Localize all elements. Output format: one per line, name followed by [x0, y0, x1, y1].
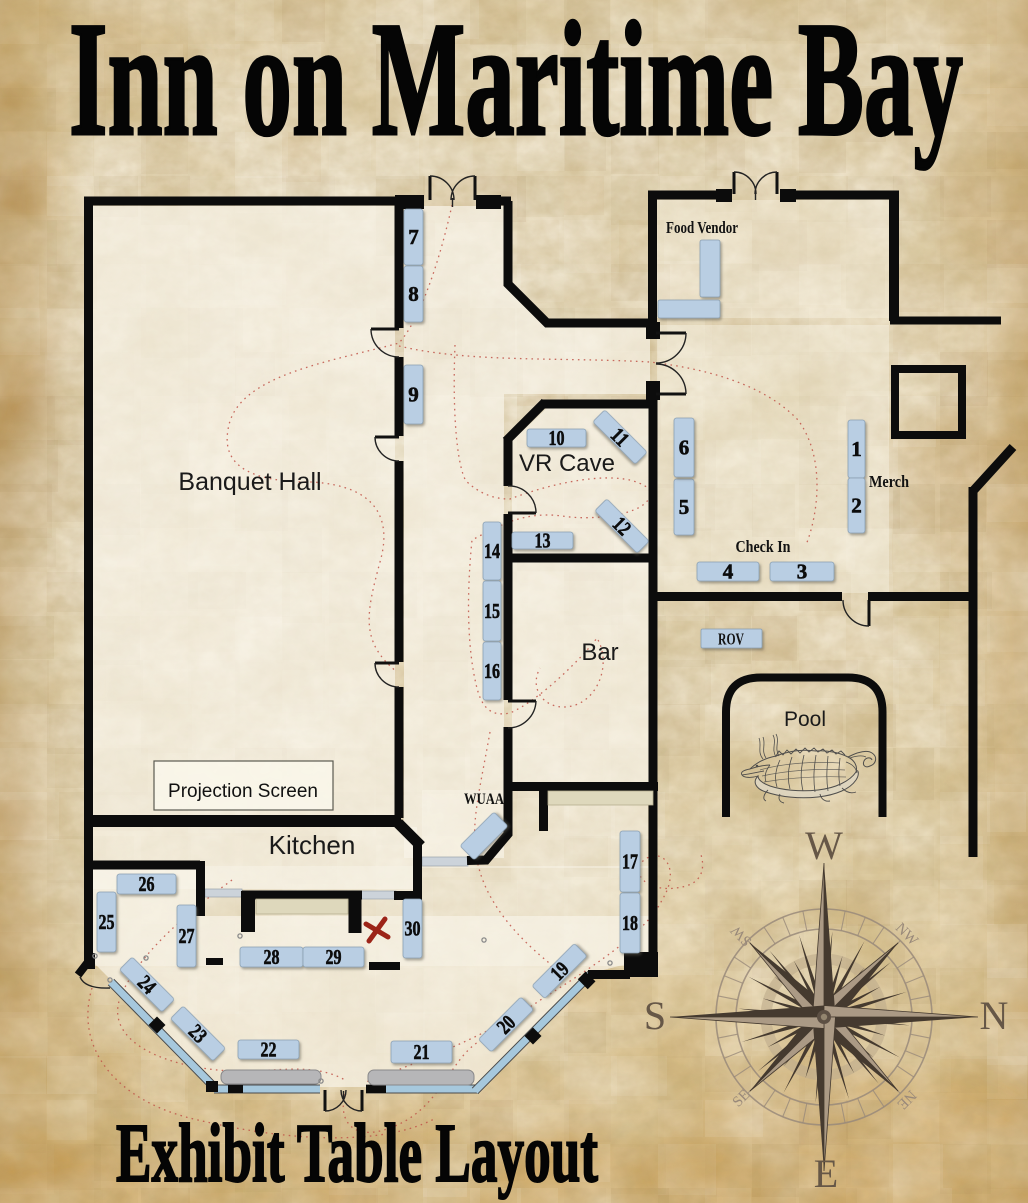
svg-text:1: 1 — [851, 437, 862, 461]
svg-text:26: 26 — [139, 872, 155, 896]
svg-text:15: 15 — [484, 599, 500, 623]
svg-text:W: W — [805, 823, 843, 868]
svg-text:8: 8 — [408, 282, 419, 306]
svg-text:2: 2 — [851, 494, 862, 518]
svg-text:VR Cave: VR Cave — [519, 450, 615, 477]
svg-text:30: 30 — [405, 917, 421, 941]
svg-text:Inn on Maritime Bay: Inn on Maritime Bay — [69, 0, 963, 170]
svg-text:E: E — [814, 1151, 838, 1196]
svg-text:18: 18 — [622, 911, 638, 935]
svg-text:17: 17 — [622, 850, 638, 874]
svg-text:Pool: Pool — [784, 708, 826, 731]
svg-text:21: 21 — [414, 1040, 430, 1064]
svg-text:3: 3 — [797, 560, 808, 584]
svg-text:13: 13 — [535, 529, 551, 553]
svg-text:Merch: Merch — [869, 472, 909, 491]
svg-text:10: 10 — [549, 426, 565, 450]
svg-text:Food Vendor: Food Vendor — [666, 218, 738, 237]
svg-text:25: 25 — [99, 910, 115, 934]
svg-text:5: 5 — [679, 495, 690, 519]
svg-text:29: 29 — [326, 945, 342, 969]
svg-text:7: 7 — [408, 225, 419, 249]
svg-text:4: 4 — [723, 560, 734, 584]
svg-text:27: 27 — [179, 924, 195, 948]
svg-text:22: 22 — [261, 1038, 277, 1062]
svg-text:28: 28 — [264, 945, 280, 969]
svg-text:9: 9 — [408, 383, 419, 407]
svg-text:S: S — [644, 993, 666, 1038]
svg-text:14: 14 — [484, 539, 500, 563]
svg-text:Projection Screen: Projection Screen — [168, 781, 318, 802]
svg-text:Exhibit Table Layout: Exhibit Table Layout — [116, 1107, 598, 1200]
svg-text:Banquet Hall: Banquet Hall — [178, 468, 321, 496]
svg-text:ROV: ROV — [718, 630, 744, 649]
svg-text:WUAA: WUAA — [464, 791, 504, 808]
svg-text:6: 6 — [679, 436, 690, 460]
svg-text:N: N — [980, 993, 1009, 1038]
svg-text:16: 16 — [484, 659, 500, 683]
svg-text:Bar: Bar — [581, 639, 618, 666]
svg-text:Kitchen: Kitchen — [269, 830, 356, 860]
svg-text:Check In: Check In — [736, 537, 791, 556]
